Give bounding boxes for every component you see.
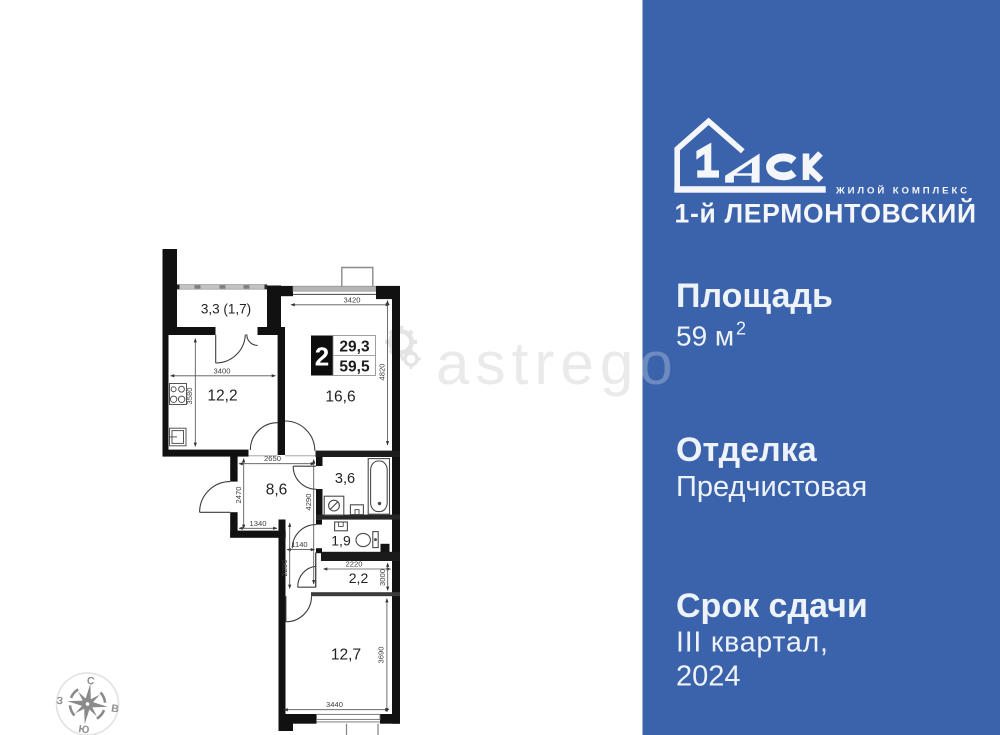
svg-text:3690: 3690 [377,647,386,664]
svg-text:Ю: Ю [78,723,91,735]
svg-text:Площадь: Площадь [676,277,833,315]
svg-text:Срок сдачи: Срок сдачи [676,587,868,625]
svg-text:ЖИЛОЙ КОМПЛЕКС: ЖИЛОЙ КОМПЛЕКС [835,184,970,196]
svg-text:2290: 2290 [280,560,289,577]
svg-text:3,6: 3,6 [335,471,355,487]
svg-text:astrego: astrego [436,330,679,397]
svg-text:12,2: 12,2 [207,388,237,405]
svg-text:3,3 (1,7): 3,3 (1,7) [201,302,251,317]
svg-text:Предчистовая: Предчистовая [676,471,867,503]
svg-text:1340: 1340 [250,519,267,528]
svg-text:4820: 4820 [377,364,386,381]
svg-text:2,2: 2,2 [349,570,369,586]
svg-text:III квартал,: III квартал, [676,627,829,659]
svg-text:29,3: 29,3 [339,339,370,356]
svg-text:12,7: 12,7 [331,647,361,664]
svg-text:2024: 2024 [676,661,741,693]
svg-text:16,6: 16,6 [325,389,355,406]
svg-text:2: 2 [315,342,329,372]
svg-text:2220: 2220 [346,560,363,569]
svg-text:59,5: 59,5 [339,359,370,376]
svg-text:3420: 3420 [344,295,361,304]
svg-text:2: 2 [736,319,746,339]
svg-text:2650: 2650 [264,454,281,463]
svg-text:3580: 3580 [185,388,194,405]
svg-text:Отделка: Отделка [676,431,818,469]
svg-text:2470: 2470 [234,487,243,504]
svg-text:1-й ЛЕРМОНТОВСКИЙ: 1-й ЛЕРМОНТОВСКИЙ [675,198,977,228]
svg-text:3440: 3440 [326,700,343,709]
svg-text:1140: 1140 [291,540,307,549]
svg-text:8,6: 8,6 [266,482,288,499]
svg-text:3000: 3000 [378,569,387,586]
svg-text:59 м: 59 м [676,321,734,352]
svg-text:1,9: 1,9 [331,533,351,549]
svg-text:4290: 4290 [304,494,313,511]
svg-text:3400: 3400 [214,366,231,375]
